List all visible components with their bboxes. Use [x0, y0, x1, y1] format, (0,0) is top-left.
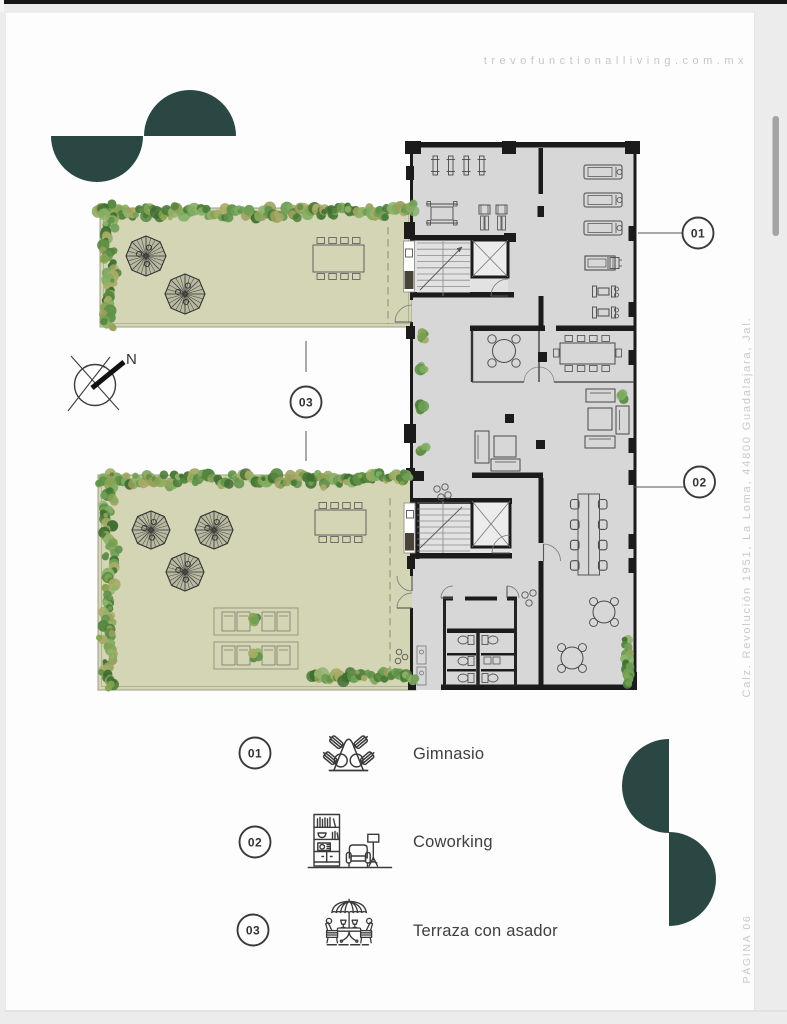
svg-text:Gimnasio: Gimnasio — [413, 745, 484, 763]
svg-text:Calz. Revolución 1951, La Loma: Calz. Revolución 1951, La Loma, 44800 Gu… — [741, 317, 753, 698]
svg-text:Terraza con asador: Terraza con asador — [413, 922, 558, 940]
svg-text:trevofunctionalliving.com.mx: trevofunctionalliving.com.mx — [484, 55, 748, 67]
svg-text:PÁGINA 06: PÁGINA 06 — [740, 915, 753, 984]
svg-text:02: 02 — [248, 835, 262, 849]
svg-text:N: N — [126, 351, 137, 368]
svg-text:Coworking: Coworking — [413, 833, 493, 851]
svg-text:01: 01 — [248, 746, 262, 760]
svg-text:02: 02 — [692, 475, 706, 489]
svg-text:03: 03 — [299, 395, 313, 409]
svg-text:01: 01 — [691, 226, 705, 240]
svg-text:03: 03 — [246, 923, 260, 937]
